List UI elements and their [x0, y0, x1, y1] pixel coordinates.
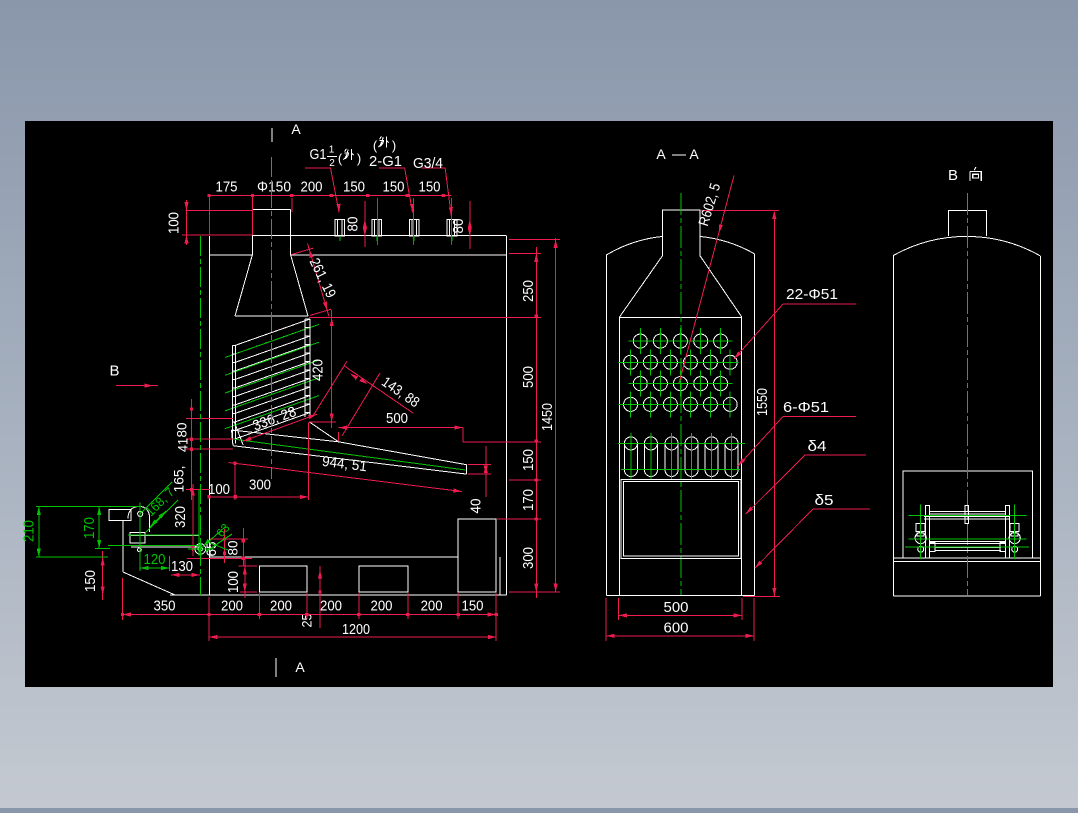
svg-text:420: 420 [311, 359, 327, 381]
svg-text:120: 120 [144, 552, 166, 568]
svg-text:A: A [689, 146, 699, 162]
svg-text:A: A [295, 659, 305, 675]
svg-text:500: 500 [521, 366, 537, 388]
svg-text:G3/4: G3/4 [413, 156, 443, 172]
svg-text:200: 200 [421, 599, 443, 615]
svg-text:200: 200 [221, 599, 243, 615]
svg-text:Φ150: Φ150 [257, 180, 291, 196]
svg-text:500: 500 [664, 600, 689, 616]
svg-text:165,: 165, [172, 466, 187, 493]
svg-text:A: A [291, 121, 301, 137]
svg-text:δ4: δ4 [808, 439, 827, 455]
svg-text:300: 300 [249, 478, 271, 494]
svg-text:A: A [656, 146, 666, 162]
svg-text:150: 150 [343, 180, 365, 196]
svg-text:B: B [948, 167, 958, 184]
svg-text:200: 200 [301, 180, 323, 196]
svg-text:B: B [109, 363, 119, 380]
svg-text:320: 320 [173, 506, 189, 528]
svg-text:G1: G1 [310, 147, 327, 163]
svg-text:): ) [392, 138, 396, 153]
svg-text:600: 600 [664, 621, 689, 637]
svg-text:2-G1: 2-G1 [369, 154, 402, 170]
svg-text:200: 200 [371, 599, 393, 615]
svg-text:80: 80 [175, 423, 190, 438]
svg-text:210: 210 [22, 520, 38, 542]
svg-text:150: 150 [419, 180, 441, 196]
svg-text:(: ( [373, 138, 378, 153]
svg-text:22-Φ51: 22-Φ51 [786, 287, 838, 303]
svg-text:150: 150 [83, 570, 99, 592]
svg-text:41: 41 [176, 438, 191, 452]
svg-text:170: 170 [521, 489, 537, 511]
svg-text:500: 500 [386, 411, 408, 427]
svg-text:δ5: δ5 [815, 493, 834, 509]
svg-text:1200: 1200 [342, 622, 370, 638]
svg-text:150: 150 [383, 180, 405, 196]
svg-text:100: 100 [167, 212, 183, 234]
svg-text:175: 175 [216, 180, 238, 196]
svg-text:170: 170 [82, 517, 98, 539]
svg-text:80: 80 [346, 217, 362, 232]
svg-text:1: 1 [329, 145, 335, 156]
svg-text:2: 2 [329, 158, 335, 169]
svg-text:100: 100 [208, 482, 230, 498]
svg-text:1450: 1450 [540, 403, 556, 431]
svg-text:150: 150 [521, 449, 537, 471]
svg-text:6-Φ51: 6-Φ51 [783, 400, 829, 416]
svg-text:250: 250 [521, 280, 537, 302]
svg-text:(: ( [338, 151, 343, 166]
svg-text:80: 80 [451, 219, 467, 234]
svg-text:300: 300 [521, 547, 537, 569]
svg-text:130: 130 [171, 559, 193, 575]
svg-text:150: 150 [462, 599, 484, 615]
svg-text:200: 200 [320, 599, 342, 615]
svg-text:40: 40 [469, 499, 485, 514]
svg-text:200: 200 [270, 599, 292, 615]
svg-text:100: 100 [226, 571, 242, 593]
svg-text:): ) [357, 151, 361, 166]
svg-text:1550: 1550 [755, 388, 771, 416]
svg-text:80: 80 [226, 541, 241, 556]
svg-text:350: 350 [154, 599, 176, 615]
